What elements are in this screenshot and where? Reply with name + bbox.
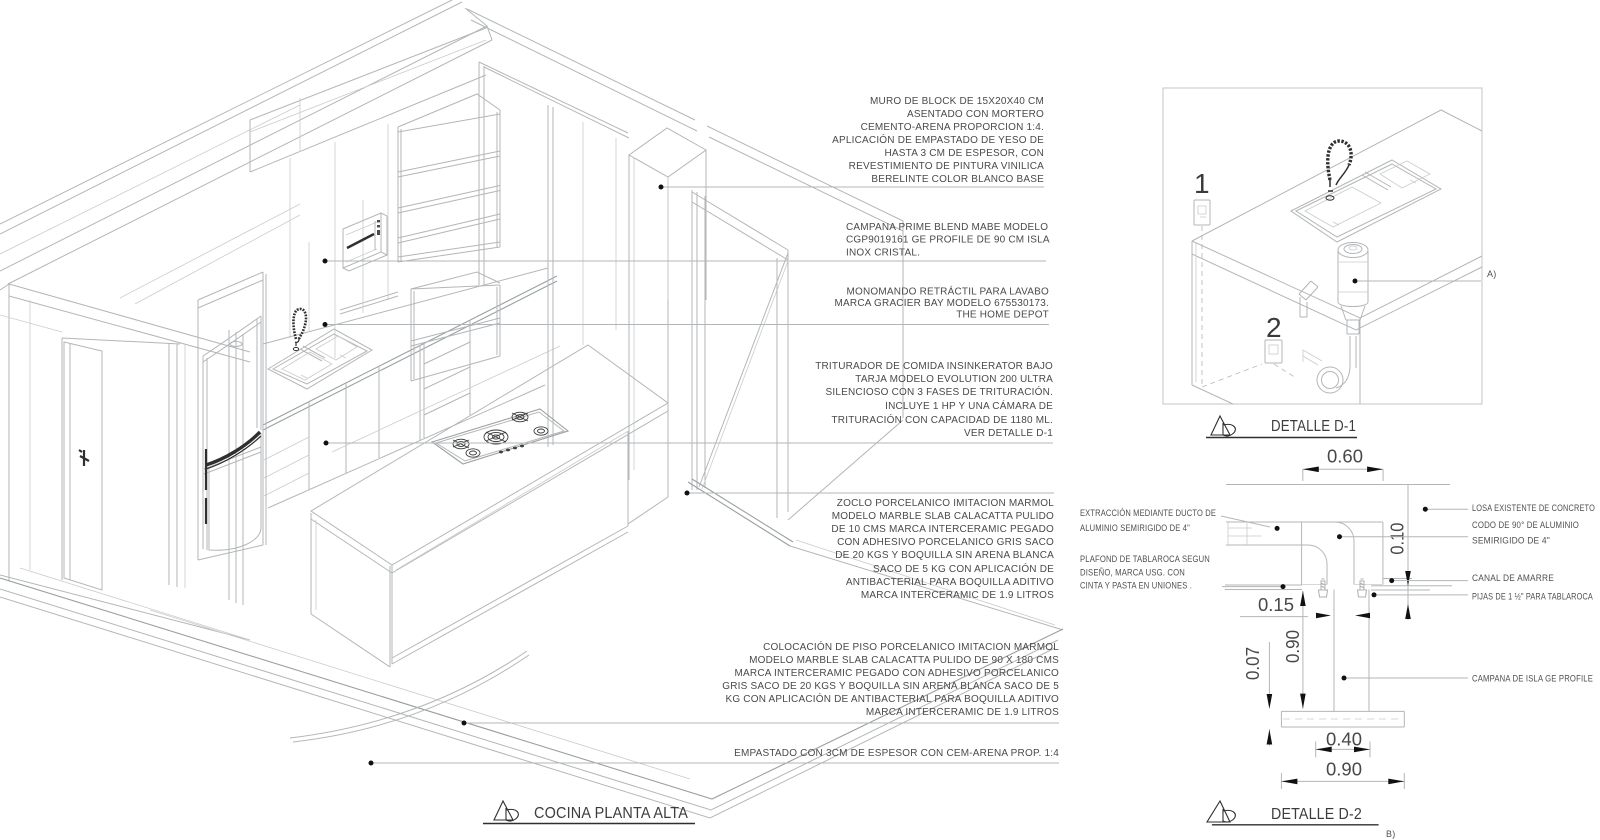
svg-text:CAMPANA PRIME BLEND MABE MODEL: CAMPANA PRIME BLEND MABE MODELO bbox=[846, 222, 1048, 233]
svg-text:MODELO MARBLE SLAB CALACATTA P: MODELO MARBLE SLAB CALACATTA PULIDO DE 9… bbox=[749, 655, 1059, 666]
svg-text:HASTA 3 CM DE ESPESOR, CON: HASTA 3 CM DE ESPESOR, CON bbox=[885, 148, 1045, 159]
svg-text:MARCA INTERCERAMIC DE 1.9 LITR: MARCA INTERCERAMIC DE 1.9 LITROS bbox=[861, 590, 1054, 601]
svg-text:THE HOME DEPOT: THE HOME DEPOT bbox=[956, 310, 1049, 321]
svg-text:SEMIRIGIDO DE 4": SEMIRIGIDO DE 4" bbox=[1472, 536, 1550, 546]
svg-text:0.40: 0.40 bbox=[1326, 729, 1362, 750]
svg-text:MARCA INTERCERAMIC PEGADO CON: MARCA INTERCERAMIC PEGADO CON ADHESIVO P… bbox=[735, 668, 1060, 679]
svg-text:2: 2 bbox=[1266, 312, 1282, 343]
svg-text:EXTRACCIÓN MEDIANTE DUCTO DE: EXTRACCIÓN MEDIANTE DUCTO DE bbox=[1080, 508, 1216, 518]
svg-text:SILENCIOSO CON 3 FASES DE TRIT: SILENCIOSO CON 3 FASES DE TRITURACIÓN. bbox=[826, 385, 1053, 398]
svg-text:ALUMINIO SEMIRIGIDO DE 4": ALUMINIO SEMIRIGIDO DE 4" bbox=[1080, 523, 1190, 533]
svg-text:CODO DE 90° DE ALUMINIO: CODO DE 90° DE ALUMINIO bbox=[1472, 520, 1579, 530]
svg-text:0.90: 0.90 bbox=[1282, 630, 1303, 663]
svg-text:CINTA Y PASTA EN UNIONES .: CINTA Y PASTA EN UNIONES . bbox=[1080, 581, 1192, 591]
svg-text:MODELO MARBLE SLAB CALACATTA P: MODELO MARBLE SLAB CALACATTA PULIDO bbox=[832, 511, 1054, 522]
svg-text:APLICACIÓN DE EMPASTADO DE YES: APLICACIÓN DE EMPASTADO DE YESO DE bbox=[832, 133, 1044, 146]
svg-text:GRIS SACO DE 20 KGS Y BOQUILLA: GRIS SACO DE 20 KGS Y BOQUILLA SIN ARENA… bbox=[722, 681, 1059, 692]
svg-text:PLAFOND DE TABLAROCA SEGUN: PLAFOND DE TABLAROCA SEGUN bbox=[1080, 554, 1210, 564]
svg-text:BERELINTE COLOR BLANCO BASE: BERELINTE COLOR BLANCO BASE bbox=[871, 174, 1044, 185]
svg-text:0.15: 0.15 bbox=[1258, 594, 1294, 615]
svg-text:ANTIBACTERIAL PARA BOQUILLA AD: ANTIBACTERIAL PARA BOQUILLA ADITIVO bbox=[846, 577, 1054, 588]
svg-text:CEMENTO-ARENA PROPORCION 1:4.: CEMENTO-ARENA PROPORCION 1:4. bbox=[861, 122, 1044, 133]
svg-text:CON ADHESIVO PORCELANICO GRIS: CON ADHESIVO PORCELANICO GRIS SACO bbox=[837, 537, 1054, 548]
svg-text:DISEÑO, MARCA USG. CON: DISEÑO, MARCA USG. CON bbox=[1080, 568, 1185, 578]
svg-text:MARCA GRACIER BAY MODELO 67553: MARCA GRACIER BAY MODELO 675530173. bbox=[835, 298, 1050, 309]
svg-text:ASENTADO CON MORTERO: ASENTADO CON MORTERO bbox=[907, 109, 1044, 120]
svg-text:REVESTIMIENTO DE PINTURA VINIL: REVESTIMIENTO DE PINTURA VINILICA bbox=[849, 161, 1044, 172]
svg-text:INCLUYE 1 HP Y UNA CÁMARA DE: INCLUYE 1 HP Y UNA CÁMARA DE bbox=[885, 399, 1053, 412]
svg-text:TRITURADOR DE COMIDA INSINKERA: TRITURADOR DE COMIDA INSINKERATOR BAJO bbox=[815, 361, 1053, 372]
svg-text:SACO DE 5 KG CON APLICACIÓN DE: SACO DE 5 KG CON APLICACIÓN DE bbox=[873, 562, 1054, 575]
svg-text:DE 10 CMS MARCA INTERCERAMIC P: DE 10 CMS MARCA INTERCERAMIC PEGADO bbox=[831, 524, 1054, 535]
svg-text:CANAL DE AMARRE: CANAL DE AMARRE bbox=[1472, 573, 1554, 583]
svg-text:A): A) bbox=[1487, 269, 1496, 279]
svg-text:ZOCLO PORCELANICO IMITACION MA: ZOCLO PORCELANICO IMITACION MARMOL bbox=[837, 498, 1054, 509]
svg-text:VER DETALLE D-1: VER DETALLE D-1 bbox=[964, 428, 1053, 439]
svg-text:0.90: 0.90 bbox=[1326, 759, 1362, 780]
svg-text:CAMPANA DE ISLA GE PROFILE: CAMPANA DE ISLA GE PROFILE bbox=[1472, 674, 1593, 684]
svg-text:1: 1 bbox=[1194, 168, 1210, 199]
svg-text:MURO DE BLOCK DE 15X20X40 CM: MURO DE BLOCK DE 15X20X40 CM bbox=[870, 96, 1044, 107]
svg-text:DETALLE D-1: DETALLE D-1 bbox=[1271, 418, 1356, 435]
svg-text:MARCA INTERCERAMIC DE 1.9 LITR: MARCA INTERCERAMIC DE 1.9 LITROS bbox=[866, 707, 1059, 718]
svg-text:DE 20 KGS Y BOQUILLA SIN ARENA: DE 20 KGS Y BOQUILLA SIN ARENA BLANCA bbox=[835, 550, 1054, 561]
svg-text:0.10: 0.10 bbox=[1387, 523, 1408, 555]
svg-text:INOX CRISTAL.: INOX CRISTAL. bbox=[846, 248, 920, 259]
svg-text:MONOMANDO RETRÁCTIL PARA LAVAB: MONOMANDO RETRÁCTIL PARA LAVABO bbox=[846, 285, 1049, 298]
svg-text:KG CON APLICACIÓN DE ANTIBACTE: KG CON APLICACIÓN DE ANTIBACTERIAL PARA … bbox=[725, 692, 1059, 705]
svg-text:EMPASTADO CON 3CM DE ESPESOR: EMPASTADO CON 3CM DE ESPESOR CON CEM-ARE… bbox=[734, 748, 1059, 759]
svg-text:B): B) bbox=[1386, 829, 1395, 839]
svg-text:0.07: 0.07 bbox=[1242, 647, 1263, 680]
svg-text:0.60: 0.60 bbox=[1327, 446, 1363, 467]
svg-text:TRITURACIÓN CON CAPACIDAD DE 1: TRITURACIÓN CON CAPACIDAD DE 1180 ML. bbox=[831, 413, 1053, 426]
svg-text:LOSA EXISTENTE DE CONCRETO: LOSA EXISTENTE DE CONCRETO bbox=[1472, 503, 1595, 513]
svg-text:CGP9019161 GE PROFILE DE 90 CM: CGP9019161 GE PROFILE DE 90 CM ISLA bbox=[846, 235, 1050, 246]
svg-text:TARJA MODELO EVOLUTION 200 ULT: TARJA MODELO EVOLUTION 200 ULTRA bbox=[855, 374, 1053, 385]
svg-text:COCINA PLANTA ALTA: COCINA PLANTA ALTA bbox=[534, 805, 688, 822]
svg-text:COLOCACIÓN DE PISO PORCELANICO: COLOCACIÓN DE PISO PORCELANICO IMITACION… bbox=[763, 640, 1059, 653]
svg-text:DETALLE D-2: DETALLE D-2 bbox=[1271, 806, 1362, 823]
svg-text:PIJAS DE 1 ½" PARA TABLAROCA: PIJAS DE 1 ½" PARA TABLAROCA bbox=[1472, 592, 1593, 602]
